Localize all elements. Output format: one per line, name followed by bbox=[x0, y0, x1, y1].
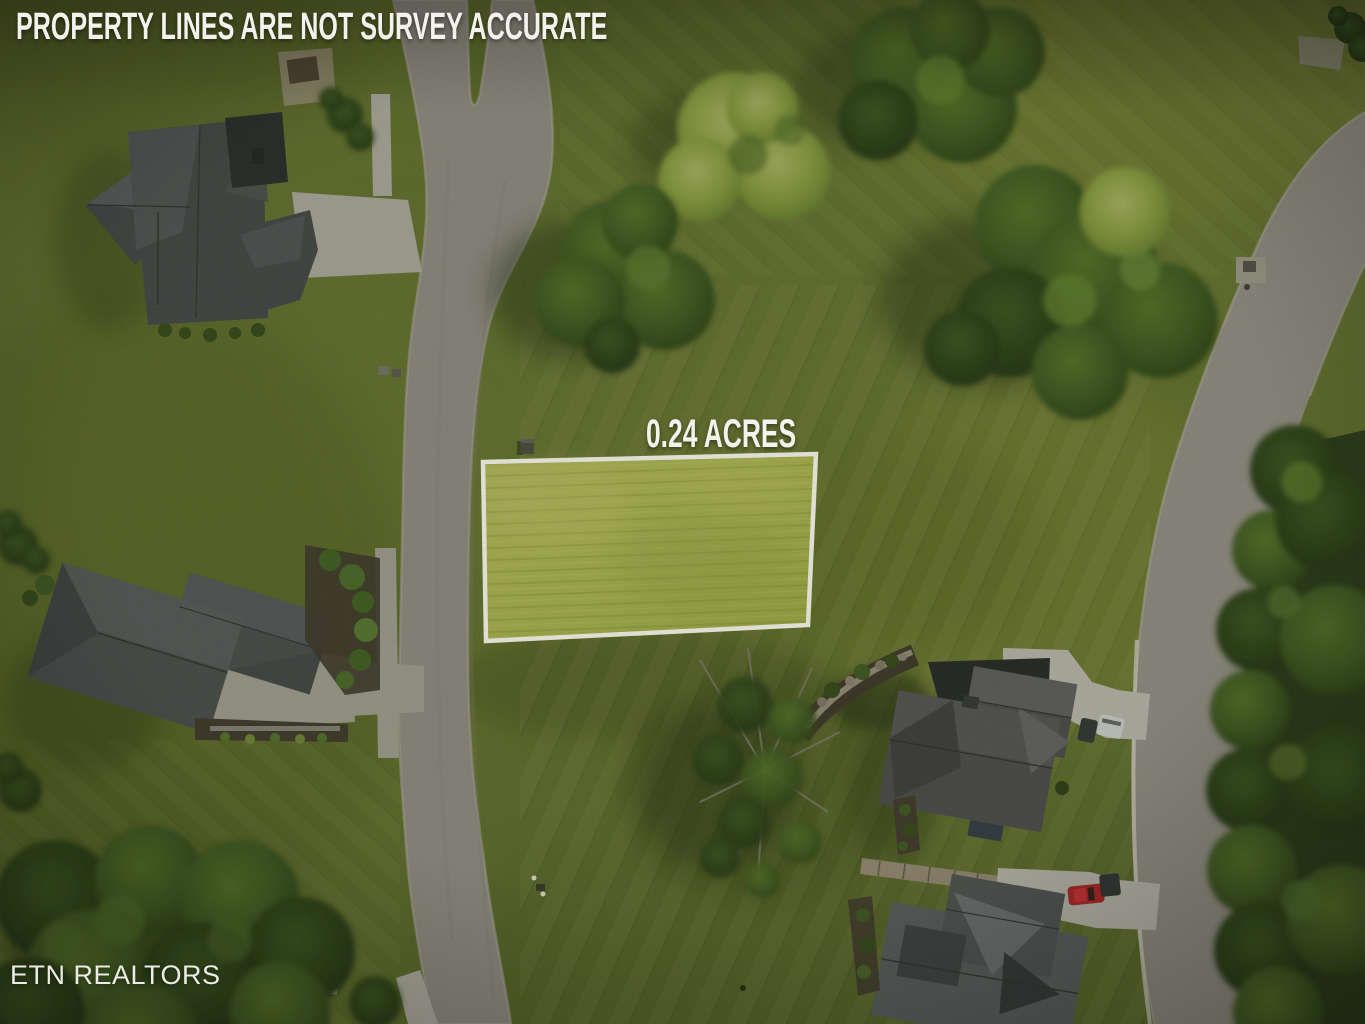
aerial-photo: PROPERTY LINES ARE NOT SURVEY ACCURATE 0… bbox=[0, 0, 1365, 1024]
vignette bbox=[0, 0, 1365, 1024]
lot-acreage-label: 0.24 ACRES bbox=[646, 412, 796, 457]
photo-effects bbox=[0, 0, 1365, 1024]
aerial-scene-svg bbox=[0, 0, 1365, 1024]
realtor-watermark: ETN REALTORS bbox=[10, 960, 221, 991]
disclaimer-text: PROPERTY LINES ARE NOT SURVEY ACCURATE bbox=[16, 6, 607, 49]
